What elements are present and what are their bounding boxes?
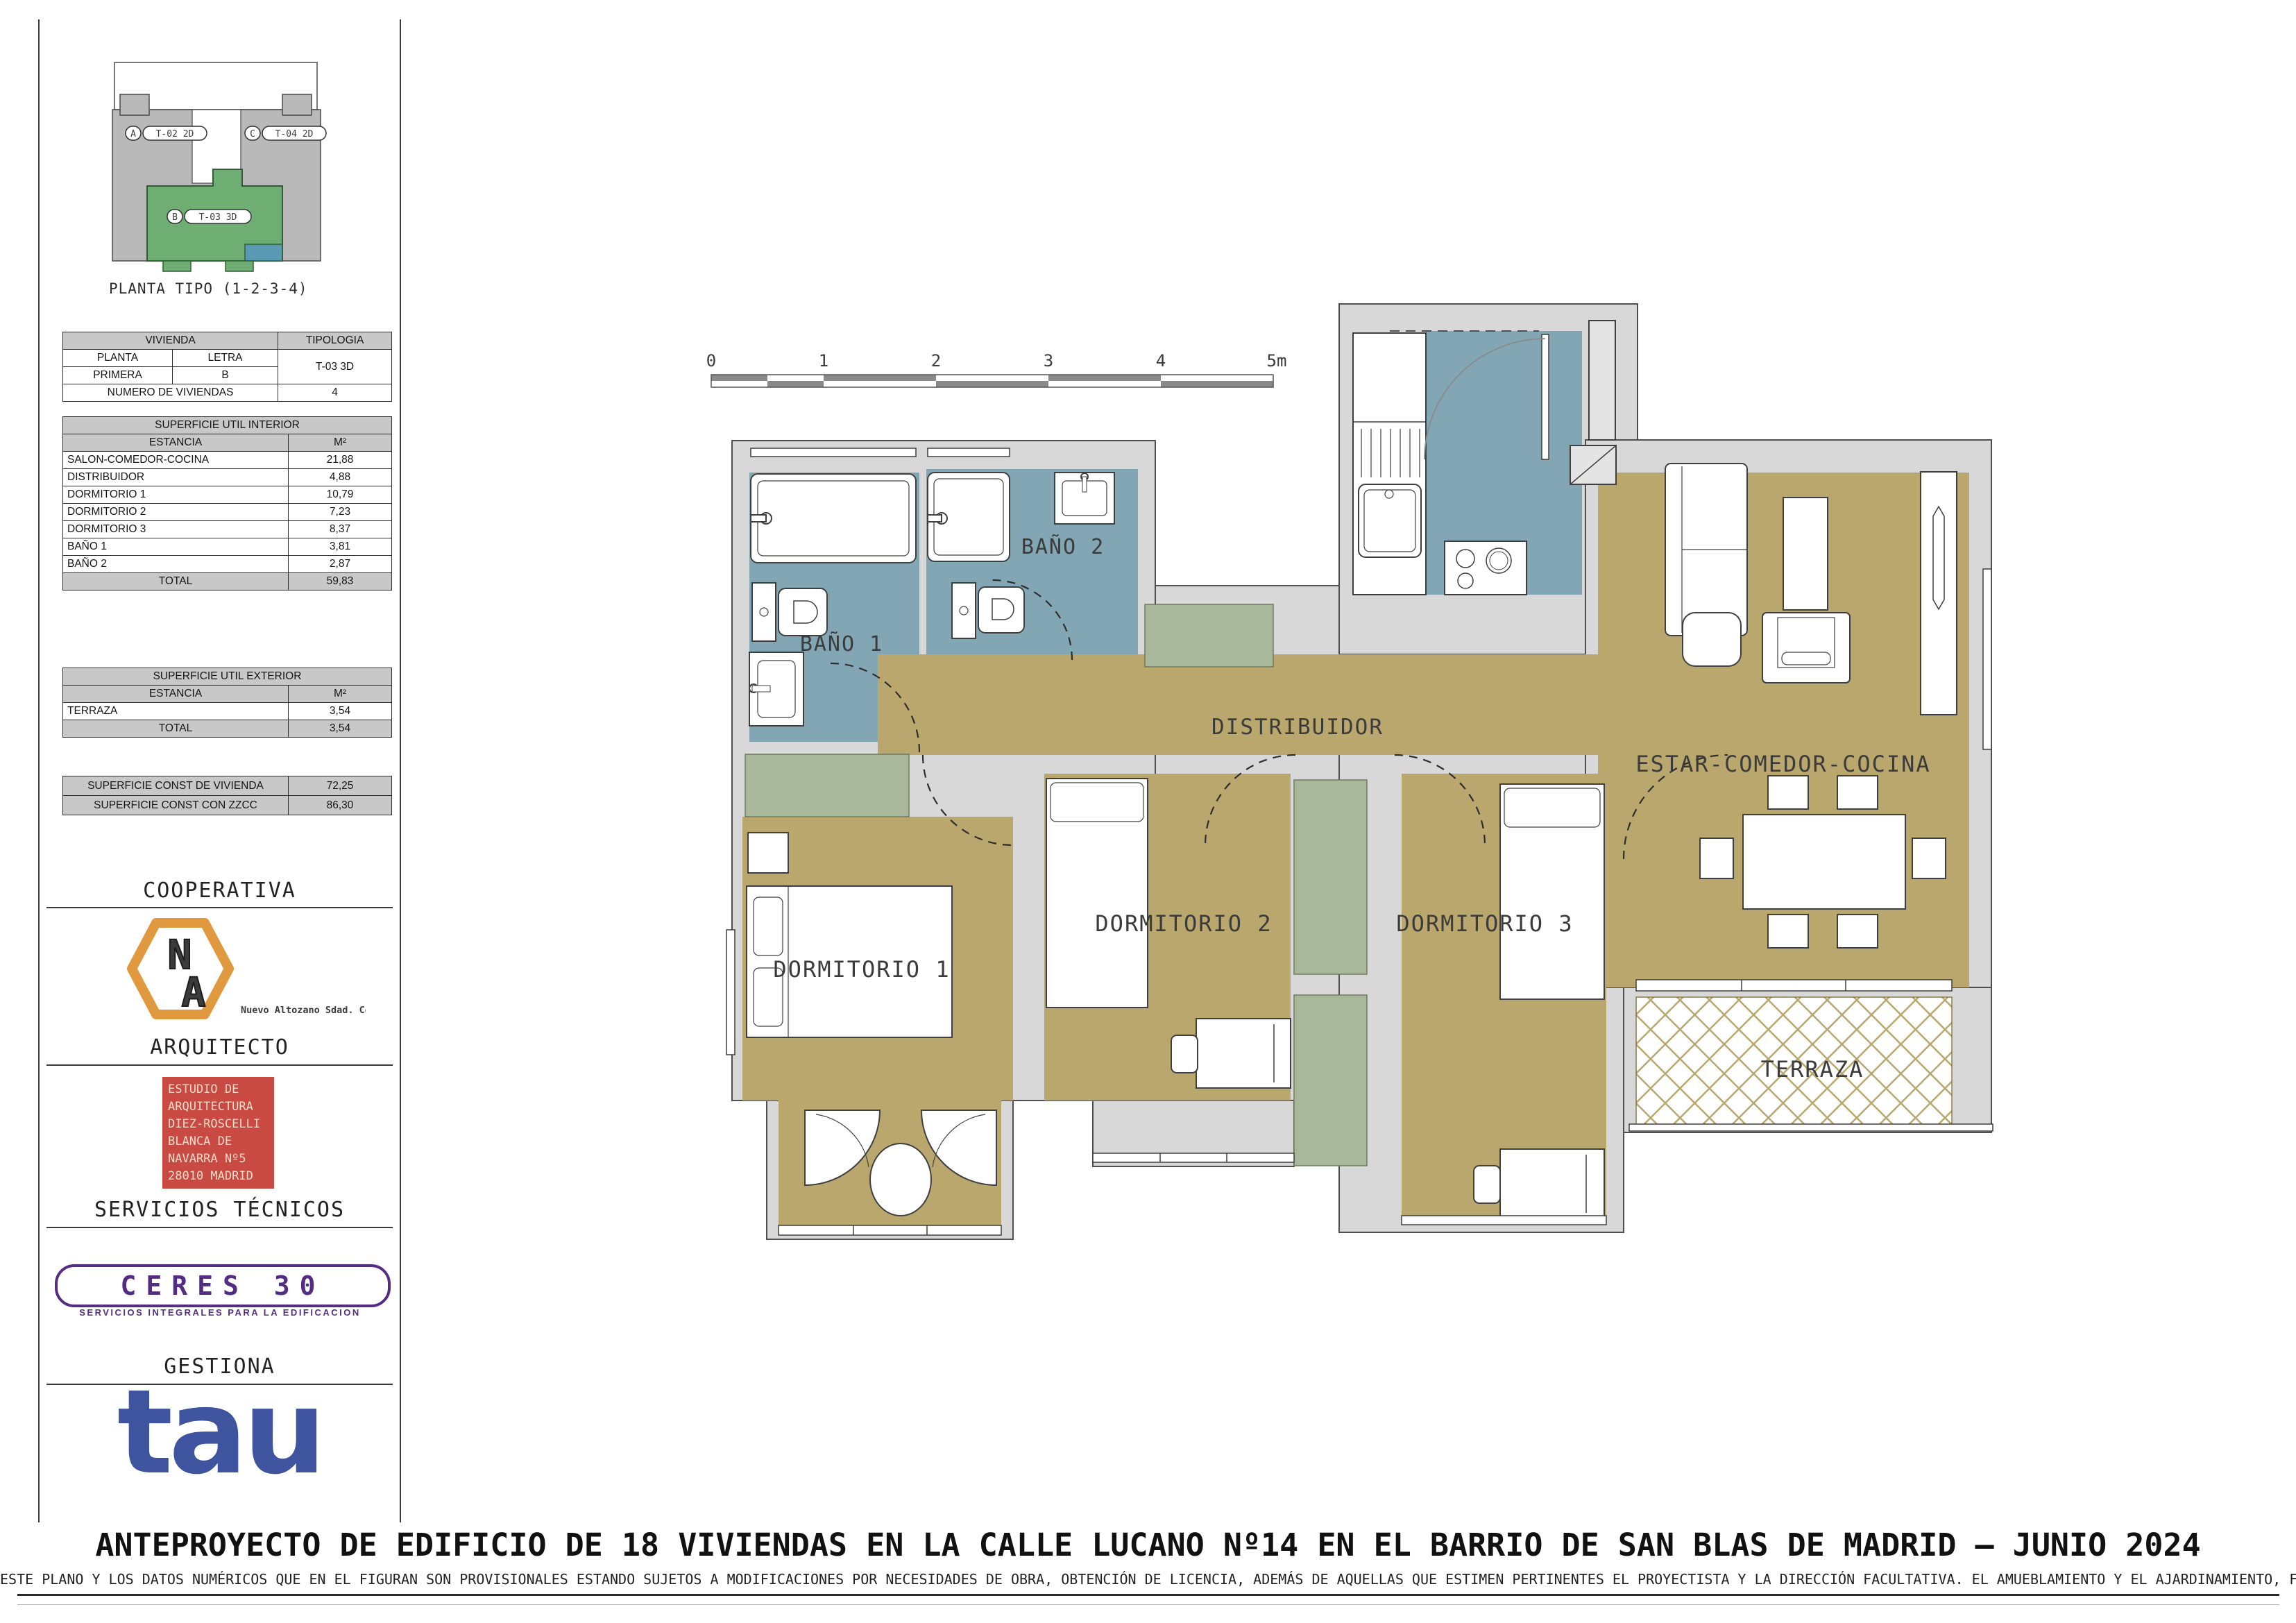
floor-plan: 0 1 2 3 4 5m xyxy=(694,278,2012,1270)
ceres-subtext: SERVICIOS INTEGRALES PARA LA EDIFICACION xyxy=(55,1307,385,1318)
exterior-total-label: TOTAL xyxy=(63,720,289,738)
dorm3-chair xyxy=(1474,1166,1500,1203)
keyplan-label-a: A T-02 2D xyxy=(126,126,207,140)
table-row: VIVIENDA TIPOLOGIA xyxy=(63,332,392,350)
toilet-bano2 xyxy=(978,587,1024,633)
table-row: SUPERFICIE UTIL INTERIOR xyxy=(63,417,392,434)
estancia-header: ESTANCIA xyxy=(63,434,289,452)
keyplan-caption: PLANTA TIPO (1-2-3-4) xyxy=(109,280,308,297)
dorm1-nightstand xyxy=(748,833,788,873)
window-bay-dorm2 xyxy=(1093,1153,1294,1162)
keyplan-label-c: C T-04 2D xyxy=(245,126,326,140)
svg-text:3: 3 xyxy=(1044,351,1053,371)
exterior-total-value: 3,54 xyxy=(289,720,392,738)
closet-hall xyxy=(1145,604,1273,667)
label-estar: ESTAR-COMEDOR-COCINA xyxy=(1635,751,1930,777)
keyplan-diagram: A T-02 2D C T-04 2D B T-03 3D xyxy=(109,60,331,275)
keyplan-tab-1 xyxy=(163,261,191,271)
window-living-terraza xyxy=(1636,980,1952,991)
table-row: DISTRIBUIDOR4,88 xyxy=(63,469,392,486)
keyplan-label-b: B T-03 3D xyxy=(167,210,251,223)
toilet-bano1 xyxy=(779,588,827,636)
dining-chair xyxy=(1768,915,1808,948)
dining-chair xyxy=(1837,915,1878,948)
label-dorm3: DORMITORIO 3 xyxy=(1396,910,1573,937)
bathtub-bano1 xyxy=(751,474,916,563)
keyplan-notch-right xyxy=(282,94,312,115)
svg-text:B: B xyxy=(172,212,178,223)
keyplan-terrace xyxy=(245,244,282,261)
dining-chair xyxy=(1837,776,1878,809)
dining-chair xyxy=(1700,838,1733,878)
interior-total-label: TOTAL xyxy=(63,573,289,590)
window-living-east xyxy=(1983,569,1991,749)
table-row: DORMITORIO 27,23 xyxy=(63,504,392,521)
table-row: ESTANCIA M² xyxy=(63,434,392,452)
footer-rule-2 xyxy=(17,1604,2279,1605)
planta-label: PLANTA xyxy=(63,350,173,367)
num-viviendas-value: 4 xyxy=(278,384,392,402)
table-row: TOTAL 3,54 xyxy=(63,720,392,738)
label-dorm1: DORMITORIO 1 xyxy=(773,956,950,983)
dorm2-bed xyxy=(1046,779,1148,1008)
sidebar-divider xyxy=(400,19,401,1522)
svg-text:0: 0 xyxy=(706,351,716,371)
dining-table xyxy=(1743,815,1905,909)
label-bano1: BAÑO 1 xyxy=(800,631,883,656)
window xyxy=(751,448,916,457)
keyplan-tab-2 xyxy=(226,261,253,271)
dining-chair xyxy=(1768,776,1808,809)
window xyxy=(928,448,1010,457)
dorm2-desk xyxy=(1196,1019,1291,1088)
footer-rule xyxy=(17,1594,2279,1596)
table-row: PLANTA LETRA T-03 3D xyxy=(63,350,392,367)
table-row: BAÑO 13,81 xyxy=(63,538,392,556)
num-viviendas-label: NUMERO DE VIVIENDAS xyxy=(63,384,278,402)
exterior-title: SUPERFICIE UTIL EXTERIOR xyxy=(63,668,392,686)
table-row: DORMITORIO 110,79 xyxy=(63,486,392,504)
arquitecto-heading: ARQUITECTO xyxy=(46,1035,393,1060)
floor-distribuidor xyxy=(878,654,1624,755)
window xyxy=(726,930,735,1055)
sheet-disclaimer: ESTE PLANO Y LOS DATOS NUMÉRICOS QUE EN … xyxy=(0,1571,2296,1588)
vivienda-table: VIVIENDA TIPOLOGIA PLANTA LETRA T-03 3D … xyxy=(62,332,392,402)
balcony-table xyxy=(870,1144,931,1216)
svg-text:2: 2 xyxy=(931,351,941,371)
plan-sheet: A T-02 2D C T-04 2D B T-03 3D PLANTA TIP… xyxy=(0,0,2296,1623)
servicios-heading: SERVICIOS TÉCNICOS xyxy=(46,1198,393,1222)
table-row: BAÑO 22,87 xyxy=(63,556,392,573)
superficie-exterior-table: SUPERFICIE UTIL EXTERIOR ESTANCIA M² TER… xyxy=(62,668,392,738)
keyplan-notch-left xyxy=(120,94,149,115)
dorm2-chair xyxy=(1171,1035,1198,1073)
sideboard xyxy=(1921,472,1957,715)
letra-label: LETRA xyxy=(173,350,278,367)
interior-total-value: 59,83 xyxy=(289,573,392,590)
interior-title: SUPERFICIE UTIL INTERIOR xyxy=(63,417,392,434)
terraza-rail xyxy=(1629,1124,1993,1131)
svg-text:T-02 2D: T-02 2D xyxy=(156,129,194,139)
na-subtext: Nuevo Altozano Sdad. Coop. xyxy=(241,1005,366,1016)
elevator-shaft xyxy=(1589,321,1615,440)
dining-chair xyxy=(1912,838,1946,878)
closet-dorm2 xyxy=(1294,780,1367,974)
table-row: DORMITORIO 38,37 xyxy=(63,521,392,538)
table-row: NUMERO DE VIVIENDAS 4 xyxy=(63,384,392,402)
svg-text:1: 1 xyxy=(819,351,828,371)
arquitecto-logo: ESTUDIO DE ARQUITECTURA DIEZ-ROSCELLI BL… xyxy=(162,1077,274,1189)
table-row: TOTAL 59,83 xyxy=(63,573,392,590)
svg-text:T-03 3D: T-03 3D xyxy=(199,212,237,223)
svg-text:A: A xyxy=(130,129,136,139)
table-row: ESTANCIA M² xyxy=(63,686,392,703)
na-letter-a: A xyxy=(182,969,206,1016)
entry-door-leaf xyxy=(1542,334,1549,459)
table-row: SALON-COMEDOR-COCINA21,88 xyxy=(63,452,392,469)
tau-logo: tau xyxy=(40,1374,400,1490)
superficie-construida-table: SUPERFICIE CONST DE VIVIENDA72,25 SUPERF… xyxy=(62,776,392,815)
svg-text:T-04 2D: T-04 2D xyxy=(275,129,314,139)
ceres-logo: CERES 30 xyxy=(55,1264,391,1307)
coffee-table xyxy=(1783,498,1828,610)
tipologia-header: TIPOLOGIA xyxy=(278,332,392,350)
scale-bar: 0 1 2 3 4 5m xyxy=(706,351,1287,387)
table-row: TERRAZA3,54 xyxy=(63,703,392,720)
dorm3-desk xyxy=(1500,1149,1604,1218)
vivienda-header: VIVIENDA xyxy=(63,332,278,350)
sidebar: A T-02 2D C T-04 2D B T-03 3D PLANTA TIP… xyxy=(40,0,400,1524)
cooperativa-logo: N A Nuevo Altozano Sdad. Coop. xyxy=(102,915,366,1026)
window-bay-dorm1 xyxy=(779,1225,1001,1235)
servicios-rule xyxy=(46,1227,393,1228)
cooperativa-heading: COOPERATIVA xyxy=(46,878,393,903)
table-row: SUPERFICIE UTIL EXTERIOR xyxy=(63,668,392,686)
table-row: SUPERFICIE CONST CON ZZCC86,30 xyxy=(63,796,392,815)
armchair xyxy=(1762,613,1850,683)
kitchen-stove xyxy=(1445,541,1527,595)
label-distribuidor: DISTRIBUIDOR xyxy=(1211,715,1384,740)
m2-header: M² xyxy=(289,434,392,452)
window-dorm3 xyxy=(1402,1216,1606,1225)
pouf xyxy=(1683,613,1741,666)
svg-text:C: C xyxy=(250,129,255,139)
cooperativa-rule xyxy=(46,907,393,908)
closet-dorm1 xyxy=(745,754,909,817)
arquitecto-rule xyxy=(46,1064,393,1066)
scale-bar-segments xyxy=(711,375,1273,387)
label-terraza: TERRAZA xyxy=(1761,1056,1864,1082)
letra-value: B xyxy=(173,367,278,384)
sheet-title: ANTEPROYECTO DE EDIFICIO DE 18 VIVIENDAS… xyxy=(0,1527,2296,1563)
label-bano2: BAÑO 2 xyxy=(1021,534,1105,559)
dorm3-bed xyxy=(1500,784,1604,999)
tipologia-value: T-03 3D xyxy=(278,350,392,384)
closet-dorm3 xyxy=(1294,995,1367,1166)
label-dorm2: DORMITORIO 2 xyxy=(1095,910,1272,937)
superficie-interior-table: SUPERFICIE UTIL INTERIOR ESTANCIA M² SAL… xyxy=(62,416,392,590)
svg-text:5m: 5m xyxy=(1267,351,1287,371)
table-row: SUPERFICIE CONST DE VIVIENDA72,25 xyxy=(63,776,392,796)
svg-text:4: 4 xyxy=(1156,351,1166,371)
planta-value: PRIMERA xyxy=(63,367,173,384)
